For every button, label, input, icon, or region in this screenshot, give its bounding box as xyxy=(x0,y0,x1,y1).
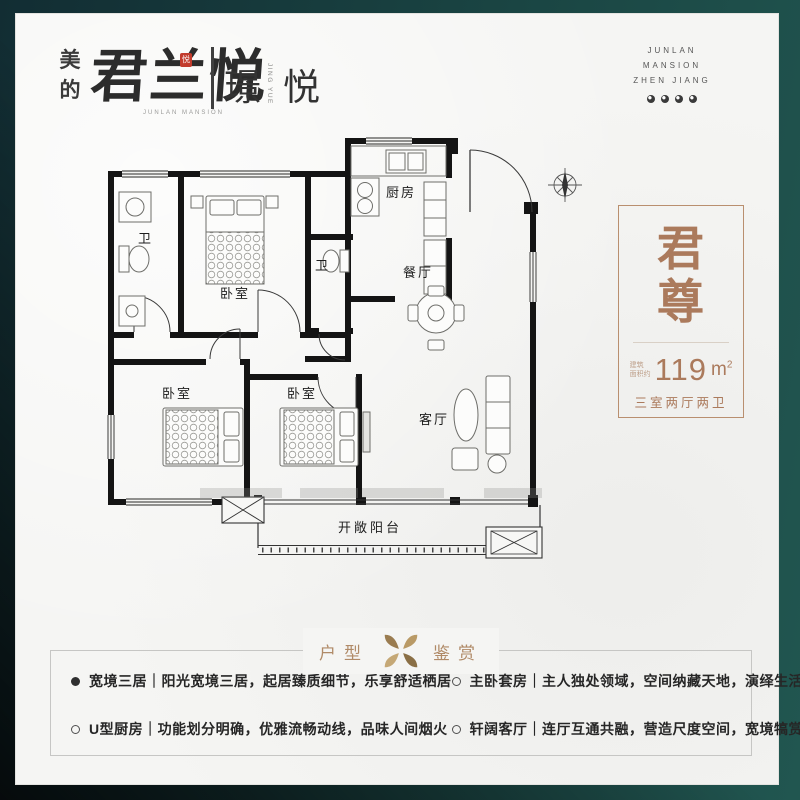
bullet-hollow-icon xyxy=(452,725,461,734)
corner-seal-marks xyxy=(613,95,731,103)
seal-mark-icon xyxy=(647,95,655,103)
label-bath2: 卫 xyxy=(315,258,330,273)
series-char-1: 璟 xyxy=(224,57,261,111)
corner-line-3: ZHEN JIANG xyxy=(613,73,731,88)
area-prefix: 建筑 面积约 xyxy=(630,361,651,380)
furniture xyxy=(119,146,510,473)
feature-item-2: U型厨房｜功能划分明确，优雅流畅动线，品味人间烟火 xyxy=(71,719,452,739)
area-unit: m2 xyxy=(711,359,732,381)
section-title-left: 户型 xyxy=(319,639,369,664)
feature-item-1: 宽境三居｜阳光宽境三居，起居臻质细节，乐享舒适栖居 xyxy=(71,671,452,691)
label-balcony: 开敞阳台 xyxy=(338,520,402,535)
area-unit-base: m xyxy=(711,359,727,380)
feature-item-3: 主卧套房｜主人独处领域，空间纳藏天地，演绎生活格调 xyxy=(452,671,800,691)
corner-line-2: MANSION xyxy=(613,58,731,73)
floorplan-svg: 厨房 餐厅 客厅 卫 卫 卧室 卧室 卧室 开敞阳台 xyxy=(105,135,585,585)
label-bedroom-left: 卧室 xyxy=(162,386,192,401)
compass-icon xyxy=(548,168,582,202)
corner-line-1: JUNLAN xyxy=(613,43,731,58)
doors xyxy=(134,150,532,415)
poster-root: { "colors": { "frame_teal": "#1a4543", "… xyxy=(0,0,800,800)
unit-name-char-2: 尊 xyxy=(619,277,743,330)
label-bath1: 卫 xyxy=(138,231,153,246)
section-title-right: 鉴赏 xyxy=(433,639,483,664)
feature-text-4: 轩阔客厅｜连厅互通共融，营造尺度空间，宽境犒赏人生 xyxy=(470,719,800,739)
area-value: 119 xyxy=(655,352,707,388)
flower-ornament-icon xyxy=(379,629,423,673)
midea-char-1: 美 xyxy=(57,46,83,76)
bullet-hollow-icon xyxy=(452,677,461,686)
section-legend: 户型 鉴赏 xyxy=(303,628,499,674)
area-prefix-line-1: 建筑 xyxy=(630,361,651,370)
area-unit-sup: 2 xyxy=(727,360,733,371)
unit-name-char-1: 君 xyxy=(619,224,743,277)
seal-mark-icon xyxy=(661,95,669,103)
series-caption: JING YUE xyxy=(266,63,273,105)
area-row: 建筑 面积约 119 m2 xyxy=(619,352,743,388)
label-bedroom-top: 卧室 xyxy=(220,286,250,301)
midea-logo: 美 的 xyxy=(57,46,83,107)
corner-brand-block: JUNLAN MANSION ZHEN JIANG xyxy=(613,43,731,103)
area-prefix-line-2: 面积约 xyxy=(630,370,651,379)
feature-text-1: 宽境三居｜阳光宽境三居，起居臻质细节，乐享舒适栖居 xyxy=(89,671,452,691)
midea-char-2: 的 xyxy=(57,76,83,106)
seal-mark-icon xyxy=(675,95,683,103)
layout-text: 三室两厅两卫 xyxy=(619,392,743,411)
balcony-sliders xyxy=(262,500,528,504)
label-living: 客厅 xyxy=(419,412,449,427)
label-bedroom-mid: 卧室 xyxy=(287,386,317,401)
white-card: 美 的 君兰悦 悦 JUNLAN MANSION 璟 JING YUE 悦 JU… xyxy=(15,13,779,785)
series-char-2: 悦 xyxy=(283,57,320,111)
info-divider xyxy=(633,342,729,343)
feature-text-2: U型厨房｜功能划分明确，优雅流畅动线，品味人间烟火 xyxy=(89,719,448,739)
feature-text-3: 主卧套房｜主人独处领域，空间纳藏天地，演绎生活格调 xyxy=(470,671,800,691)
feature-item-4: 轩阔客厅｜连厅互通共融，营造尺度空间，宽境犒赏人生 xyxy=(452,719,800,739)
bullet-hollow-icon xyxy=(71,725,80,734)
logo-caption: JUNLAN MANSION xyxy=(143,110,224,116)
red-seal-icon: 悦 xyxy=(180,53,192,67)
logo-divider xyxy=(211,47,214,109)
seal-mark-icon xyxy=(689,95,697,103)
unit-info-panel: 君 尊 建筑 面积约 119 m2 三室两厅两卫 xyxy=(618,205,744,418)
watermark-smudge xyxy=(200,488,542,498)
label-kitchen: 厨房 xyxy=(386,185,416,200)
bullet-filled-icon xyxy=(71,677,80,686)
features-box: 户型 鉴赏 宽境三居｜阳光宽境三居，起居臻质细节，乐享舒适栖居 U型厨房｜功能划… xyxy=(50,650,752,756)
label-dining: 餐厅 xyxy=(403,265,433,280)
